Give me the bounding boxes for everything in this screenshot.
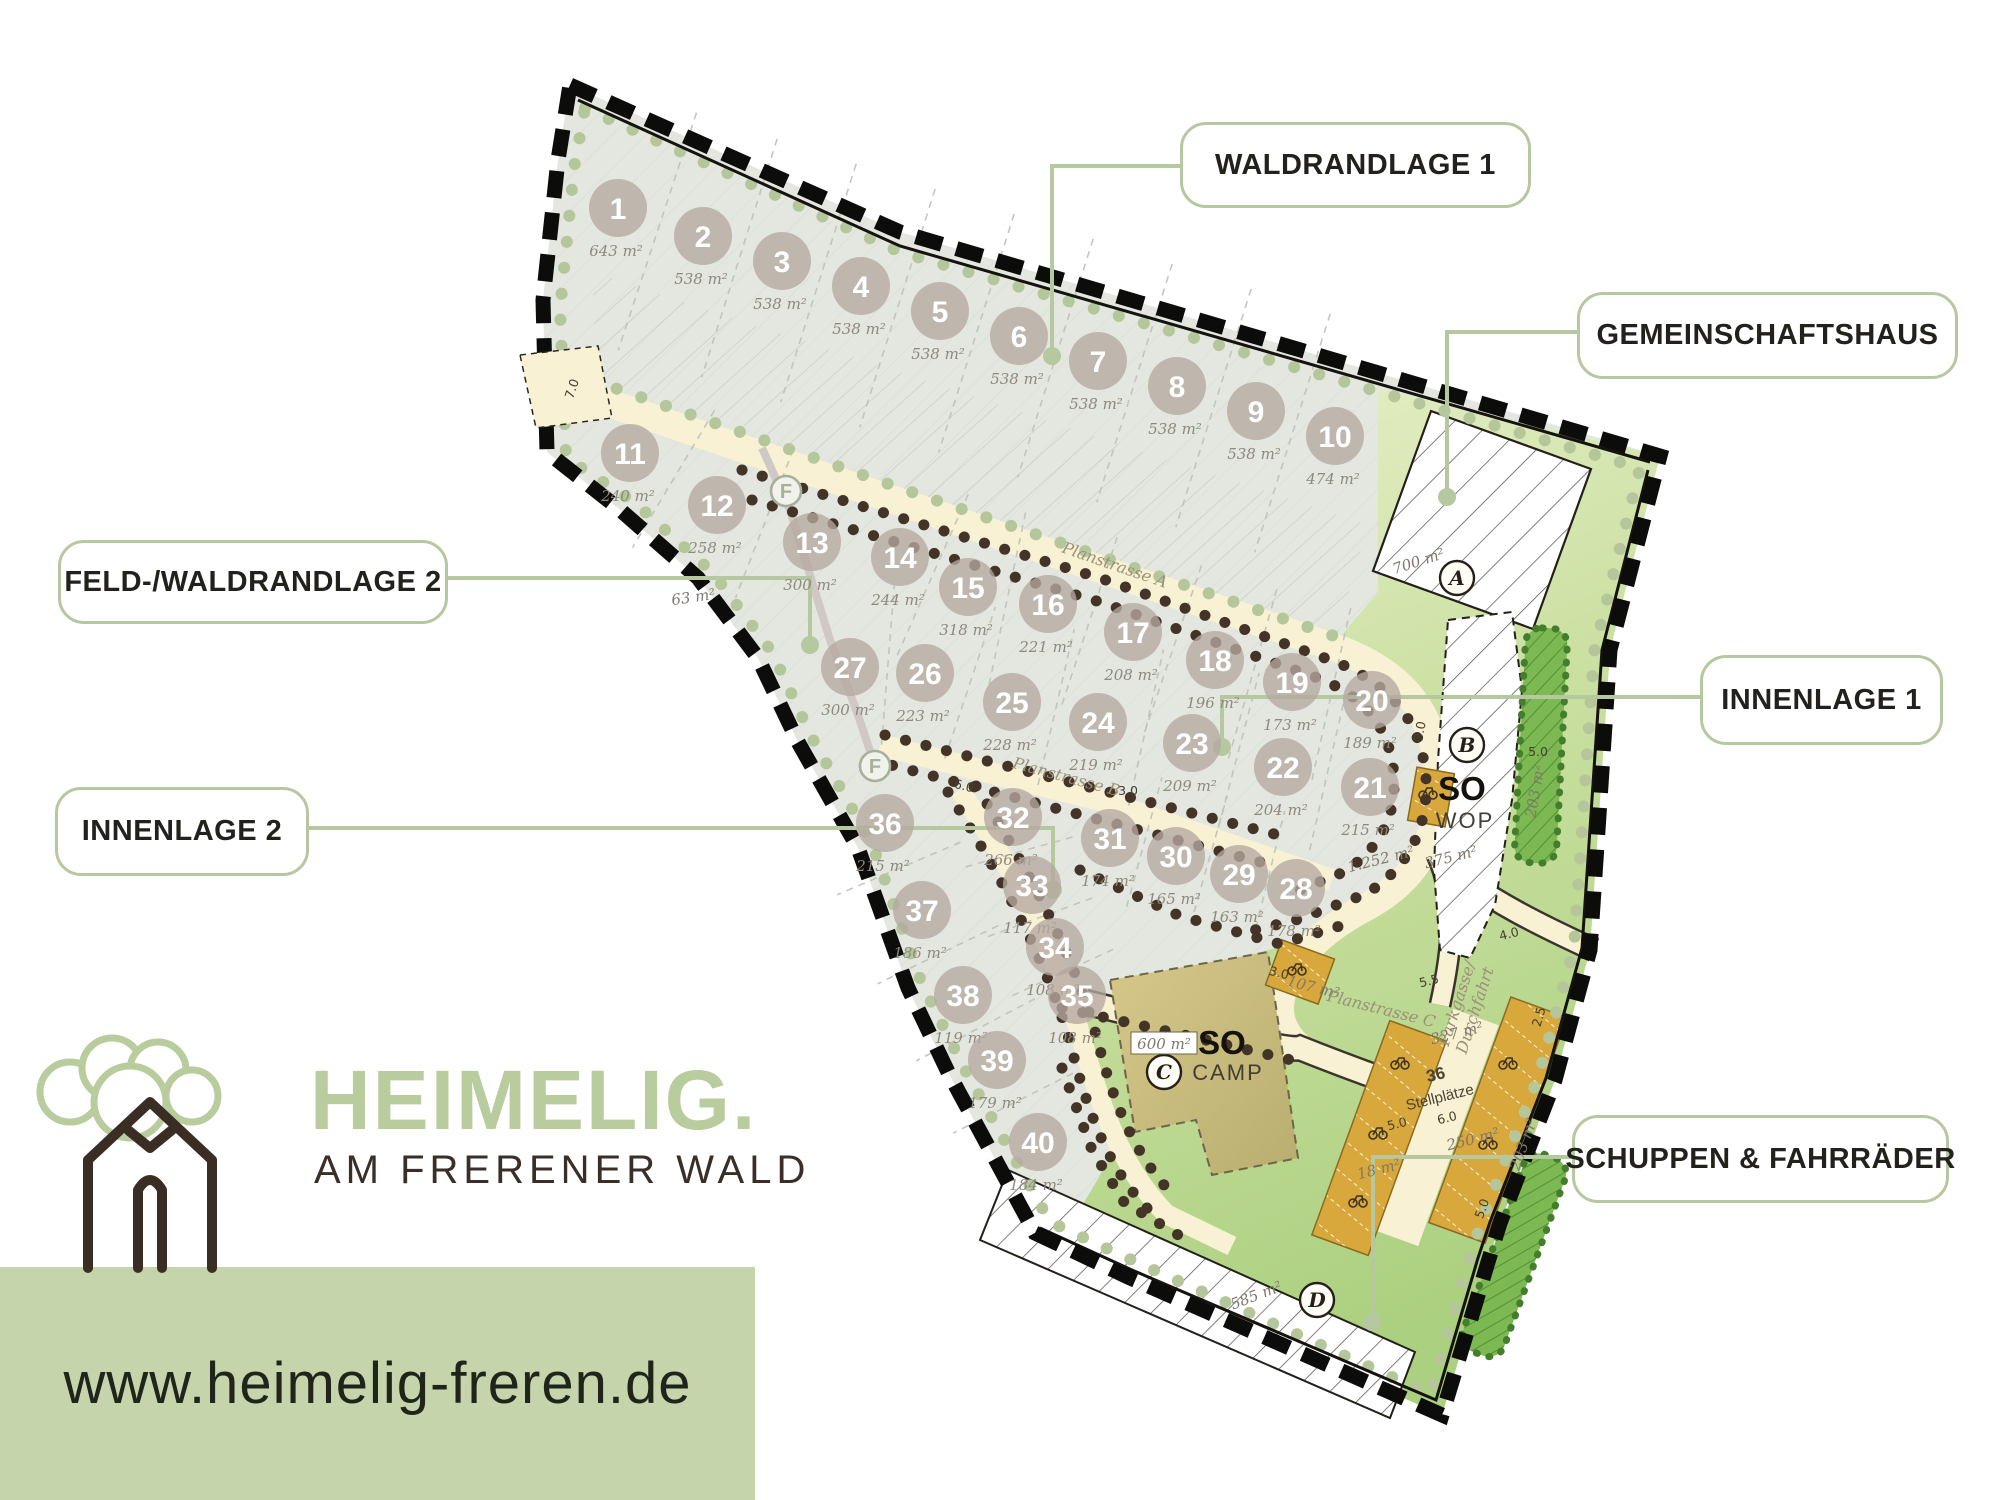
plot-marker: 39179 m² (968, 1031, 1026, 1112)
plot-marker: 18196 m² (1186, 631, 1244, 712)
svg-text:39: 39 (980, 1045, 1013, 1078)
svg-text:16: 16 (1031, 589, 1064, 622)
plot-marker: 12258 m² (687, 476, 746, 557)
svg-text:643 m²: 643 m² (589, 242, 643, 260)
svg-text:C: C (1156, 1060, 1172, 1084)
map-annotation: SO (1438, 770, 1486, 807)
svg-text:11: 11 (614, 438, 646, 471)
plot-marker: 35108 m² (1048, 966, 1106, 1047)
plot-marker: 27300 m² (821, 638, 879, 719)
svg-text:12: 12 (700, 490, 733, 523)
plot-marker: 16221 m² (1018, 575, 1077, 656)
svg-text:30: 30 (1159, 841, 1192, 874)
svg-text:F: F (869, 756, 881, 778)
svg-text:10: 10 (1318, 421, 1351, 454)
svg-text:13: 13 (795, 527, 828, 560)
svg-text:23: 23 (1175, 728, 1208, 761)
svg-text:189 m²: 189 m² (1343, 734, 1397, 752)
svg-text:19: 19 (1275, 667, 1308, 700)
map-annotation: 5.0 (1528, 744, 1548, 759)
svg-text:32: 32 (996, 802, 1029, 835)
svg-text:108 m²: 108 m² (1048, 1029, 1102, 1047)
website-banner: www.heimelig-freren.de (0, 1267, 755, 1500)
svg-text:26: 26 (908, 658, 941, 691)
svg-text:538 m²: 538 m² (832, 320, 886, 338)
plot-marker: 29163 m² (1210, 845, 1268, 926)
plot-marker: 3538 m² (753, 232, 811, 313)
svg-text:186 m²: 186 m² (893, 944, 947, 962)
svg-text:215 m²: 215 m² (855, 857, 910, 875)
svg-text:24: 24 (1081, 707, 1115, 740)
svg-text:209 m²: 209 m² (1162, 777, 1217, 795)
plot-marker: 20189 m² (1343, 671, 1401, 752)
svg-text:204 m²: 204 m² (1253, 801, 1308, 819)
svg-text:29: 29 (1222, 859, 1255, 892)
svg-text:174 m²: 174 m² (1081, 872, 1135, 890)
svg-text:5: 5 (932, 296, 949, 329)
plot-marker: 5538 m² (911, 282, 969, 363)
svg-text:21: 21 (1353, 772, 1386, 805)
svg-text:165 m²: 165 m² (1147, 890, 1201, 908)
website-url: www.heimelig-freren.de (63, 1350, 691, 1417)
plot-marker: 7538 m² (1069, 332, 1127, 413)
plot-marker: 10474 m² (1305, 407, 1364, 488)
svg-text:34: 34 (1038, 932, 1072, 965)
svg-text:22: 22 (1266, 752, 1299, 785)
svg-text:538 m²: 538 m² (1148, 420, 1202, 438)
svg-text:178 m²: 178 m² (1267, 922, 1321, 940)
plot-marker: 36215 m² (855, 794, 914, 875)
svg-text:300 m²: 300 m² (821, 701, 875, 719)
callout-schuppen-fahrraeder: SCHUPPEN & FAHRRÄDER (1572, 1115, 1949, 1203)
callout-innenlage-1: INNENLAGE 1 (1700, 655, 1943, 745)
svg-text:244 m²: 244 m² (870, 591, 925, 609)
plot-marker: 15318 m² (939, 558, 997, 639)
svg-text:538 m²: 538 m² (1227, 445, 1281, 463)
plot-marker: 17208 m² (1103, 603, 1162, 684)
svg-text:35: 35 (1060, 980, 1093, 1013)
building-marker: C (1147, 1055, 1181, 1089)
svg-text:A: A (1447, 566, 1465, 590)
svg-text:27: 27 (833, 652, 866, 685)
svg-text:18: 18 (1198, 645, 1231, 678)
svg-text:33: 33 (1015, 870, 1048, 903)
svg-text:15: 15 (951, 572, 984, 605)
plot-marker: 14244 m² (870, 528, 929, 609)
map-annotation: 3.0 (1118, 783, 1138, 798)
footpath-marker: F (771, 476, 801, 506)
svg-text:8: 8 (1169, 371, 1186, 404)
plot-marker: 1643 m² (589, 179, 647, 260)
plot-marker: 13300 m² (783, 513, 841, 594)
plot-marker: 24219 m² (1068, 693, 1127, 774)
map-annotation: SO (1198, 1024, 1246, 1061)
svg-text:F: F (780, 481, 792, 503)
svg-text:6: 6 (1011, 321, 1028, 354)
footpath-marker: F (860, 751, 890, 781)
plot-marker: 23209 m² (1162, 714, 1221, 795)
plot-marker: 2538 m² (674, 207, 732, 288)
building-marker: B (1450, 728, 1484, 762)
building-marker: D (1300, 1283, 1334, 1317)
callout-waldrandlage-1: WALDRANDLAGE 1 (1180, 122, 1531, 208)
svg-text:7: 7 (1090, 346, 1107, 379)
svg-text:240 m²: 240 m² (600, 487, 655, 505)
brand-tagline: AM FRERENER WALD (314, 1148, 810, 1193)
svg-text:14: 14 (883, 542, 917, 575)
svg-text:9: 9 (1248, 396, 1265, 429)
svg-text:258 m²: 258 m² (687, 539, 742, 557)
plot-marker: 4538 m² (832, 257, 890, 338)
plot-marker: 26223 m² (895, 644, 954, 725)
svg-text:538 m²: 538 m² (911, 345, 965, 363)
svg-text:318 m²: 318 m² (939, 621, 993, 639)
svg-text:40: 40 (1021, 1127, 1054, 1160)
plot-marker: 6538 m² (990, 307, 1048, 388)
svg-text:B: B (1458, 733, 1476, 757)
plot-marker: 31174 m² (1081, 809, 1139, 890)
house-tree-icon (0, 1030, 300, 1280)
plot-marker: 9538 m² (1227, 382, 1285, 463)
plot-marker: 28178 m² (1267, 859, 1325, 940)
plot-marker: 19173 m² (1263, 653, 1321, 734)
plot-marker: 25228 m² (982, 673, 1041, 754)
svg-text:173 m²: 173 m² (1263, 716, 1317, 734)
svg-text:179 m²: 179 m² (968, 1094, 1022, 1112)
svg-text:28: 28 (1279, 873, 1312, 906)
svg-text:184 m²: 184 m² (1009, 1176, 1063, 1194)
svg-text:31: 31 (1093, 823, 1126, 856)
plot-marker: 11240 m² (600, 424, 659, 505)
svg-text:D: D (1307, 1288, 1326, 1312)
svg-text:163 m²: 163 m² (1210, 908, 1264, 926)
callout-innenlage-2: INNENLAGE 2 (55, 787, 309, 876)
plot-marker: 37186 m² (893, 881, 951, 962)
svg-text:38: 38 (946, 980, 979, 1013)
plot-marker: 21215 m² (1340, 758, 1399, 839)
svg-text:228 m²: 228 m² (982, 736, 1037, 754)
svg-text:20: 20 (1355, 685, 1388, 718)
svg-text:196 m²: 196 m² (1186, 694, 1240, 712)
svg-text:223 m²: 223 m² (895, 707, 950, 725)
svg-text:538 m²: 538 m² (990, 370, 1044, 388)
svg-text:17: 17 (1116, 617, 1149, 650)
svg-text:538 m²: 538 m² (753, 295, 807, 313)
svg-text:1: 1 (610, 193, 627, 226)
svg-text:538 m²: 538 m² (674, 270, 728, 288)
plot-marker: 40184 m² (1009, 1113, 1067, 1194)
callout-gemeinschaftshaus: GEMEINSCHAFTSHAUS (1577, 292, 1958, 379)
brand-name: HEIMELIG. (310, 1052, 757, 1149)
camp-area-value: 600 m² (1137, 1035, 1191, 1053)
callout-feld-waldrandlage-2: FELD-/WALDRANDLAGE 2 (58, 540, 448, 624)
svg-text:3: 3 (774, 246, 791, 279)
map-annotation: CAMP (1192, 1060, 1264, 1085)
plot-marker: 8538 m² (1148, 357, 1206, 438)
svg-text:208 m²: 208 m² (1103, 666, 1158, 684)
building-marker: A (1440, 561, 1474, 595)
svg-text:36: 36 (868, 808, 901, 841)
svg-text:215 m²: 215 m² (1340, 821, 1395, 839)
svg-text:538 m²: 538 m² (1069, 395, 1123, 413)
svg-text:474 m²: 474 m² (1305, 470, 1360, 488)
svg-text:221 m²: 221 m² (1018, 638, 1073, 656)
site-plan-page: 1643 m²2538 m²3538 m²4538 m²5538 m²6538 … (0, 0, 2000, 1500)
plot-marker: 22204 m² (1253, 738, 1312, 819)
svg-text:25: 25 (995, 687, 1028, 720)
svg-text:37: 37 (905, 895, 938, 928)
map-annotation: WOP (1436, 808, 1495, 833)
svg-text:2: 2 (695, 221, 712, 254)
plot-marker: 30165 m² (1147, 827, 1205, 908)
svg-text:300 m²: 300 m² (783, 576, 837, 594)
svg-text:4: 4 (853, 271, 870, 304)
